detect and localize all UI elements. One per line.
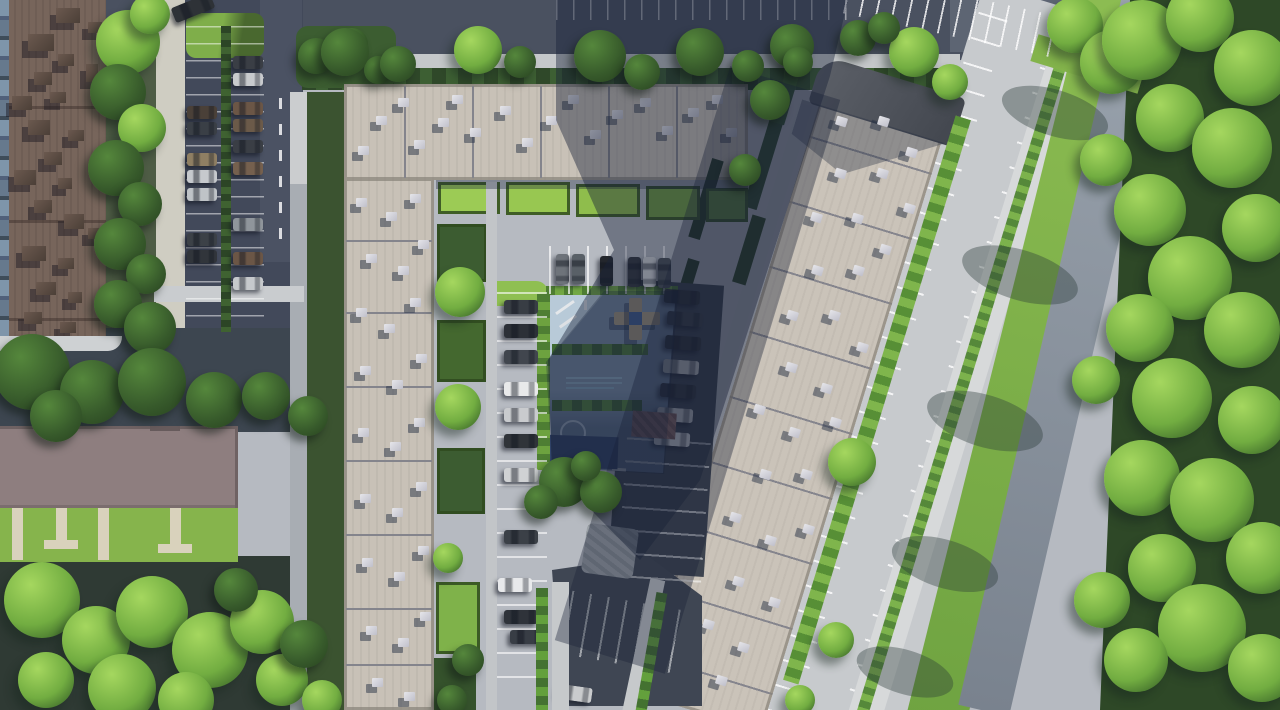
- dormer: [60, 322, 76, 333]
- strip-lawn: [436, 582, 480, 654]
- tree: [1132, 358, 1212, 438]
- dormer: [50, 92, 66, 103]
- bottom-hedge: [536, 588, 548, 710]
- lawn-path: [158, 544, 192, 553]
- roof-seam: [346, 460, 432, 462]
- roof-vent: [546, 116, 557, 125]
- walk-path-lit: [290, 92, 307, 184]
- flat-building-roof: [0, 426, 238, 508]
- tree: [288, 396, 328, 436]
- parked-car: [187, 233, 217, 246]
- roof-vent: [394, 572, 405, 581]
- dormer: [56, 8, 80, 23]
- parked-car: [233, 73, 263, 86]
- tree: [280, 620, 328, 668]
- roof-vent: [356, 308, 367, 317]
- parked-car: [504, 468, 538, 482]
- tree: [433, 543, 463, 573]
- left-lawn: [0, 500, 238, 562]
- roof-vent: [416, 354, 427, 363]
- roof-seam: [346, 664, 432, 666]
- parked-car: [187, 188, 217, 201]
- parking-hedge: [221, 26, 231, 332]
- dormer: [36, 282, 56, 295]
- strip-lawn: [437, 320, 486, 382]
- dormer: [24, 312, 42, 324]
- tree: [454, 26, 502, 74]
- tree: [1072, 356, 1120, 404]
- roof-seam: [540, 86, 542, 178]
- tree: [435, 384, 481, 430]
- tree: [783, 47, 813, 77]
- roof-vent: [404, 692, 415, 701]
- tree: [18, 652, 74, 708]
- dormer: [58, 54, 74, 66]
- dormer: [34, 72, 52, 85]
- roof-vent: [398, 638, 409, 647]
- lawn-path: [98, 506, 109, 560]
- dormer: [68, 130, 84, 141]
- parked-car: [187, 122, 217, 135]
- tree: [729, 154, 761, 186]
- roof-vent: [452, 95, 463, 104]
- tree: [321, 28, 369, 76]
- parked-car: [504, 350, 538, 364]
- tree: [818, 622, 854, 658]
- roof-vent: [418, 546, 429, 555]
- strip-lawn: [437, 448, 485, 514]
- roof-vent: [366, 626, 377, 635]
- tree: [118, 348, 186, 416]
- parked-car: [504, 324, 538, 338]
- tree: [868, 12, 900, 44]
- parked-car: [498, 578, 532, 592]
- parked-car: [187, 250, 217, 263]
- dormer: [64, 214, 84, 229]
- dormer: [12, 96, 32, 110]
- tree: [571, 451, 601, 481]
- tree: [437, 685, 467, 710]
- flat-building-notch: [150, 426, 180, 431]
- dormer: [34, 200, 52, 213]
- tree: [1192, 108, 1272, 188]
- roof-vent: [416, 482, 427, 491]
- roof-vent: [414, 418, 425, 427]
- lawn-path: [44, 540, 78, 549]
- tree: [504, 46, 536, 78]
- roof-vent: [398, 266, 409, 275]
- tree: [1218, 386, 1280, 454]
- lane-dashes: [279, 98, 282, 248]
- tree: [186, 372, 242, 428]
- roof-vent: [500, 106, 511, 115]
- parked-car: [233, 119, 263, 132]
- parked-car: [233, 162, 263, 175]
- roof-seam: [346, 386, 432, 388]
- dormer: [28, 120, 50, 135]
- tree: [380, 46, 416, 82]
- dormer: [58, 258, 74, 269]
- balcony-panels: [0, 0, 9, 344]
- roof-vent: [360, 494, 371, 503]
- roof-seam: [0, 318, 106, 321]
- roof-vent: [438, 118, 449, 127]
- dormer: [44, 152, 62, 165]
- tree: [828, 438, 876, 486]
- tree: [1114, 174, 1186, 246]
- tree: [750, 80, 790, 120]
- roof-seam: [0, 220, 106, 223]
- tree: [435, 267, 485, 317]
- roof-vent: [362, 558, 373, 567]
- roof-vent: [366, 254, 377, 263]
- roof-vent: [386, 212, 397, 221]
- dormer: [22, 246, 46, 261]
- roof-vent: [356, 198, 367, 207]
- roof-vent: [410, 194, 421, 203]
- roof-vent: [414, 140, 425, 149]
- flat-building-edge: [0, 505, 238, 508]
- parked-car: [556, 254, 569, 284]
- parked-car: [504, 434, 538, 448]
- roof-vent: [390, 442, 401, 451]
- tree: [1104, 440, 1180, 516]
- tree: [124, 302, 176, 354]
- tree: [1104, 628, 1168, 692]
- roof-vent: [384, 324, 395, 333]
- parked-car: [187, 106, 217, 119]
- tree: [732, 50, 764, 82]
- aerial-site-render: [0, 0, 1280, 710]
- parked-car: [504, 530, 538, 544]
- roof-vent: [392, 380, 403, 389]
- tree: [1214, 30, 1280, 106]
- lawn-path: [12, 506, 23, 560]
- roof-vent: [358, 428, 369, 437]
- parked-car: [504, 382, 538, 396]
- dormer: [58, 178, 72, 189]
- tree: [242, 372, 290, 420]
- parked-car: [572, 254, 585, 284]
- tree: [1080, 134, 1132, 186]
- tree: [524, 485, 558, 519]
- parked-car: [233, 277, 263, 290]
- roof-vent: [358, 146, 369, 155]
- roof-vent: [418, 240, 429, 249]
- dormer: [28, 34, 54, 51]
- parked-car: [233, 56, 263, 69]
- roof-vent: [420, 612, 431, 621]
- parked-car: [233, 252, 263, 265]
- tree: [214, 568, 258, 612]
- parked-car: [187, 153, 217, 166]
- roof-vent: [410, 298, 421, 307]
- roof-seam: [346, 534, 432, 536]
- parked-car: [504, 300, 538, 314]
- roof-vent: [392, 508, 403, 517]
- roof-vent: [522, 138, 533, 147]
- dormer: [68, 292, 82, 303]
- parked-car: [504, 610, 538, 624]
- parked-car: [504, 408, 538, 422]
- building-b-roof: [344, 178, 434, 710]
- tree: [624, 54, 660, 90]
- roof-seam: [346, 608, 432, 610]
- tree: [1074, 572, 1130, 628]
- parked-car: [233, 218, 263, 231]
- roof-vent: [376, 116, 387, 125]
- tree: [785, 685, 815, 710]
- roof-vent: [398, 98, 409, 107]
- roof-vent: [470, 128, 481, 137]
- dormer: [14, 170, 36, 185]
- tree: [1204, 292, 1280, 368]
- parked-car: [187, 170, 217, 183]
- parked-car: [233, 140, 263, 153]
- tree: [574, 30, 626, 82]
- tree: [452, 644, 484, 676]
- tree: [30, 390, 82, 442]
- parked-car: [233, 102, 263, 115]
- tree: [676, 28, 724, 76]
- flat-building-edge: [235, 426, 238, 508]
- roof-vent: [372, 678, 383, 687]
- tree: [1106, 294, 1174, 362]
- tree: [932, 64, 968, 100]
- roof-vent: [360, 366, 371, 375]
- courtyard-sidewalk: [486, 182, 497, 710]
